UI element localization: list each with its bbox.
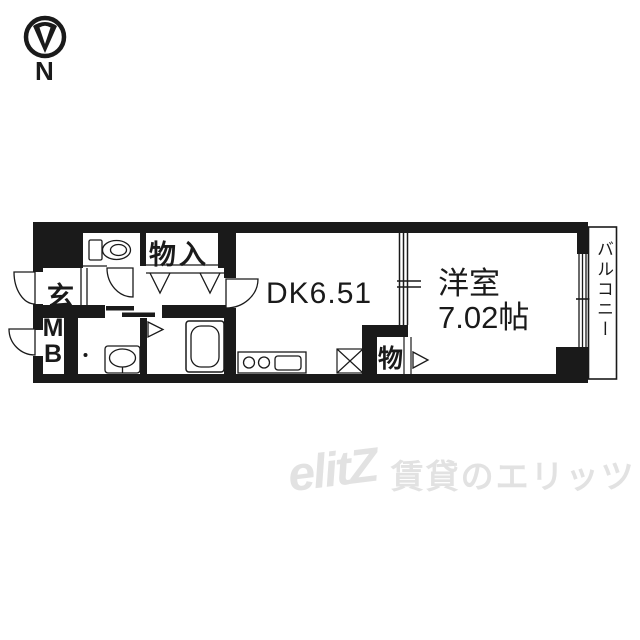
bathtub-icon [186,321,224,372]
watermark-logo: elitZ [285,438,380,503]
storage-label: 物 [378,339,403,375]
watermark-text: 賃貸のエリッツ [391,444,636,498]
watermark: elitZ 賃貸のエリッツ [288,443,636,498]
sliding-door-dk-west-icon [397,233,421,325]
sink-icon [84,346,141,373]
closet-label: 物入 [149,233,209,272]
western-room-label: 洋室 7.02帖 [438,267,529,335]
door-arc-meter-box-icon [9,329,35,355]
meter-box-label-b: B [40,341,66,367]
entrance-step-line [81,268,87,305]
meter-box-label-m: M [40,315,66,341]
western-room-size: 7.02帖 [438,301,529,335]
western-room-name: 洋室 [438,267,529,301]
storage-door-lines [404,337,411,374]
meter-box-label: M B [40,315,66,367]
door-arc-toilet-icon [107,268,133,297]
door-triangle-west-room-icon [413,352,428,368]
door-arc-dk-icon [226,279,258,308]
toilet-icon [83,240,131,266]
door-triangle-bath-icon [148,322,163,337]
floorplan-page: N [0,0,640,640]
door-arc-entrance-icon [14,272,35,304]
dining-kitchen-label: DK6.51 [266,277,372,311]
kitchen-stove-icon [238,352,306,373]
entrance-label: 玄 [47,275,74,314]
washer-space-icon [337,349,363,373]
balcony-label: バルコニー [591,240,616,380]
window-to-balcony-icon [576,254,590,347]
sliding-door-washroom-icon [106,306,155,317]
floorplan-drawing [0,0,640,640]
